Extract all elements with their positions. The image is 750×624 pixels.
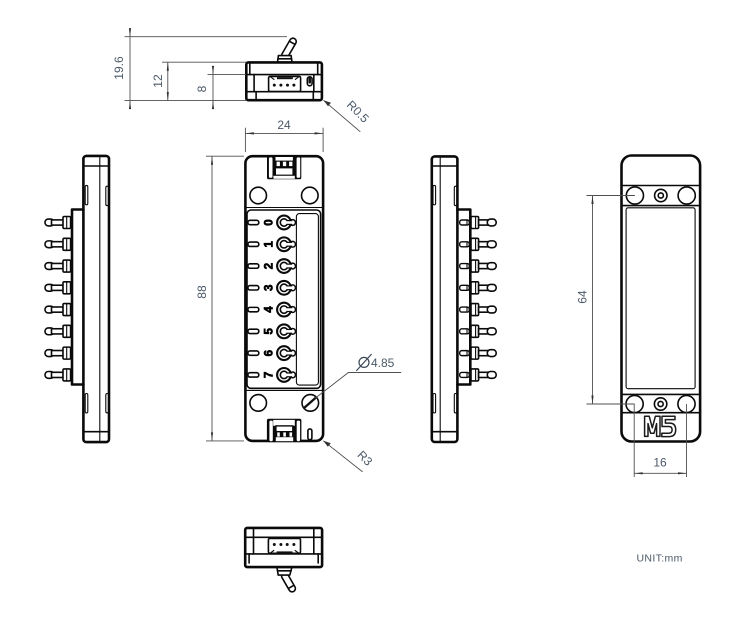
svg-text:7: 7 [264,372,276,378]
svg-text:12: 12 [151,74,165,88]
svg-text:0: 0 [264,219,276,225]
svg-text:UNIT:mm: UNIT:mm [637,553,683,565]
svg-text:1: 1 [264,240,276,247]
svg-text:64: 64 [576,290,590,304]
svg-text:4: 4 [264,306,276,313]
svg-text:6: 6 [264,350,276,356]
svg-text:8: 8 [195,85,209,92]
svg-text:16: 16 [653,456,667,470]
svg-text:88: 88 [195,285,209,299]
svg-text:24: 24 [277,118,291,132]
svg-text:19.6: 19.6 [112,56,126,80]
svg-text:3: 3 [264,285,276,291]
svg-text:5: 5 [264,328,276,335]
svg-text:2: 2 [264,263,276,269]
svg-text:4.85: 4.85 [371,356,395,370]
